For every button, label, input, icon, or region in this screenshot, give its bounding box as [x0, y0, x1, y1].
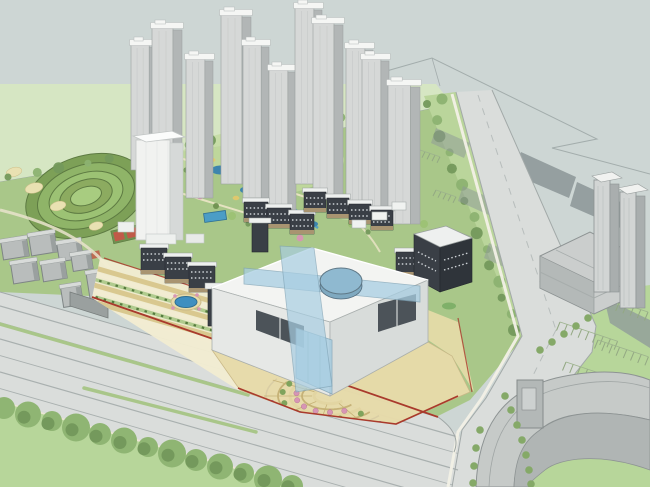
hedge-rows-part	[584, 314, 592, 322]
radial-plaza-part-part	[280, 389, 286, 395]
retail-block-part	[327, 214, 349, 218]
hedge-rows-part	[518, 436, 526, 444]
retail-block-part	[371, 226, 393, 230]
strip-tree-row-part	[447, 164, 457, 174]
foreground-tower-part	[186, 234, 204, 243]
garden-trees-part	[233, 196, 240, 200]
tower-part	[155, 20, 166, 24]
tower-part	[205, 61, 213, 198]
fountain-pond-part	[197, 307, 201, 311]
strip-tree-row-part	[470, 212, 480, 222]
hedge-rows-part	[536, 346, 544, 354]
retail-block	[326, 194, 351, 218]
hedge-rows-part	[525, 466, 533, 474]
hedge-rows-part	[472, 444, 480, 452]
tower-part	[272, 62, 281, 66]
tower	[312, 15, 345, 200]
retail-block	[140, 244, 169, 274]
glass-rotunda	[320, 268, 362, 294]
foreground-tower-part	[136, 140, 170, 240]
office-building-part	[636, 196, 645, 308]
retail-block-part	[304, 208, 326, 212]
strip-tree-row-part	[432, 115, 442, 125]
hedge-rows-part	[560, 330, 568, 338]
office-building-part	[610, 184, 619, 292]
field-edge-trees-part	[53, 162, 64, 173]
hedge-rows-part	[572, 322, 580, 330]
low-rise-blocks-part	[69, 249, 94, 271]
verge-tree-row-part	[210, 461, 223, 474]
tower-part	[189, 51, 198, 55]
tower	[185, 51, 215, 198]
tower-part	[349, 40, 358, 44]
retail-street-part	[249, 218, 271, 223]
verge-tree-row-part	[186, 455, 199, 468]
tower-part	[224, 7, 235, 11]
verge-tree-row-part	[18, 411, 31, 424]
verge-tree-row-part	[258, 474, 271, 487]
verge-tree-row-part	[234, 468, 247, 481]
tower	[361, 51, 391, 220]
fountain-pond	[171, 293, 201, 311]
radial-plaza-part-part	[301, 404, 306, 409]
tower-part	[295, 7, 314, 184]
hedge-rows-part	[507, 406, 515, 414]
field-edge-trees-part	[5, 174, 12, 181]
verge-tree-row-part	[162, 449, 175, 462]
retail-street-part	[252, 222, 268, 252]
low-rise-blocks-part	[9, 257, 40, 284]
flyover-ramp-part	[522, 388, 536, 410]
tower-part	[221, 14, 242, 184]
low-rise-blocks-part	[39, 257, 68, 282]
tower-part	[313, 22, 334, 200]
hedge-rows-part	[470, 462, 478, 470]
tower-part	[134, 37, 143, 41]
field-edge-trees-part	[437, 94, 448, 105]
garden-trees-part	[228, 212, 236, 220]
field-edge-trees-part	[105, 154, 114, 163]
retail-block	[266, 204, 293, 228]
hedge-rows-part	[548, 338, 556, 346]
hedge-rows-part	[522, 451, 530, 459]
tower-part	[186, 58, 205, 198]
office-slab-2	[620, 192, 636, 308]
office-slab-1	[594, 180, 610, 292]
field-edge-trees-part	[33, 168, 42, 177]
retail-block	[164, 253, 193, 283]
tower-part	[298, 0, 307, 4]
tower-part	[316, 15, 327, 19]
verge-tree-row-part	[42, 417, 55, 430]
fountain-pond-part	[195, 293, 199, 297]
radial-plaza-part-part	[294, 398, 299, 403]
hedge-rows-part	[513, 421, 521, 429]
strip-tree-row-part	[498, 294, 506, 302]
radial-plaza-part-part	[327, 410, 332, 415]
hedge-rows-part	[476, 426, 484, 434]
tower-part	[269, 69, 288, 210]
retail-block	[303, 188, 328, 212]
low-rise-blocks-part	[27, 229, 58, 256]
strip-tree-row-part	[423, 100, 431, 108]
tower-part	[391, 77, 402, 81]
tower-part	[362, 58, 381, 220]
tower	[268, 62, 298, 210]
retail-block	[289, 210, 316, 234]
garden-trees-part	[297, 235, 304, 242]
tower	[242, 37, 271, 198]
hedge-rows-part	[469, 479, 477, 487]
retail-block-part	[290, 230, 314, 234]
garden-trees-part	[420, 220, 428, 228]
field-edge-trees-part	[84, 160, 91, 167]
hedge-rows-part	[501, 392, 509, 400]
fountain-pond-part	[173, 294, 177, 298]
white-lowrises-part	[352, 220, 366, 228]
tower-part	[334, 25, 343, 200]
strip-tree-row-part	[471, 227, 483, 239]
foreground-tower-part	[118, 222, 134, 232]
foreground-tower-part	[170, 143, 183, 240]
retail-block-part	[267, 224, 291, 228]
tower-part	[365, 51, 374, 55]
radial-plaza-part-part	[358, 411, 364, 417]
tower-part	[410, 87, 420, 224]
verge-tree-row-part	[66, 423, 79, 436]
white-lowrises-part	[372, 212, 387, 220]
verge-tree-row-part	[90, 430, 103, 443]
radial-plaza-part-part	[286, 381, 292, 387]
retail-block-part	[165, 279, 191, 283]
fountain-pond-part	[171, 306, 175, 310]
verge-tree-row-part	[138, 442, 151, 455]
low-rise-blocks-part	[0, 235, 30, 260]
white-lowrises-part	[392, 202, 406, 210]
annex-green	[442, 303, 456, 310]
fountain-pond-part	[175, 297, 197, 308]
rendering-canvas: Aerial 3D massing rendering of a mixed-u…	[0, 0, 650, 487]
radial-plaza-part-part	[342, 408, 347, 413]
garden-trees-part	[213, 203, 219, 209]
architectural-rendering: Aerial 3D massing rendering of a mixed-u…	[0, 0, 650, 487]
radial-plaza-part-part	[313, 408, 318, 413]
garden-trees-part	[365, 229, 370, 234]
tower-part	[243, 44, 261, 198]
foreground-tower-part	[146, 234, 176, 244]
retail-block-part	[141, 270, 167, 274]
tower-part	[246, 37, 255, 41]
verge-tree-row-part	[114, 436, 127, 449]
